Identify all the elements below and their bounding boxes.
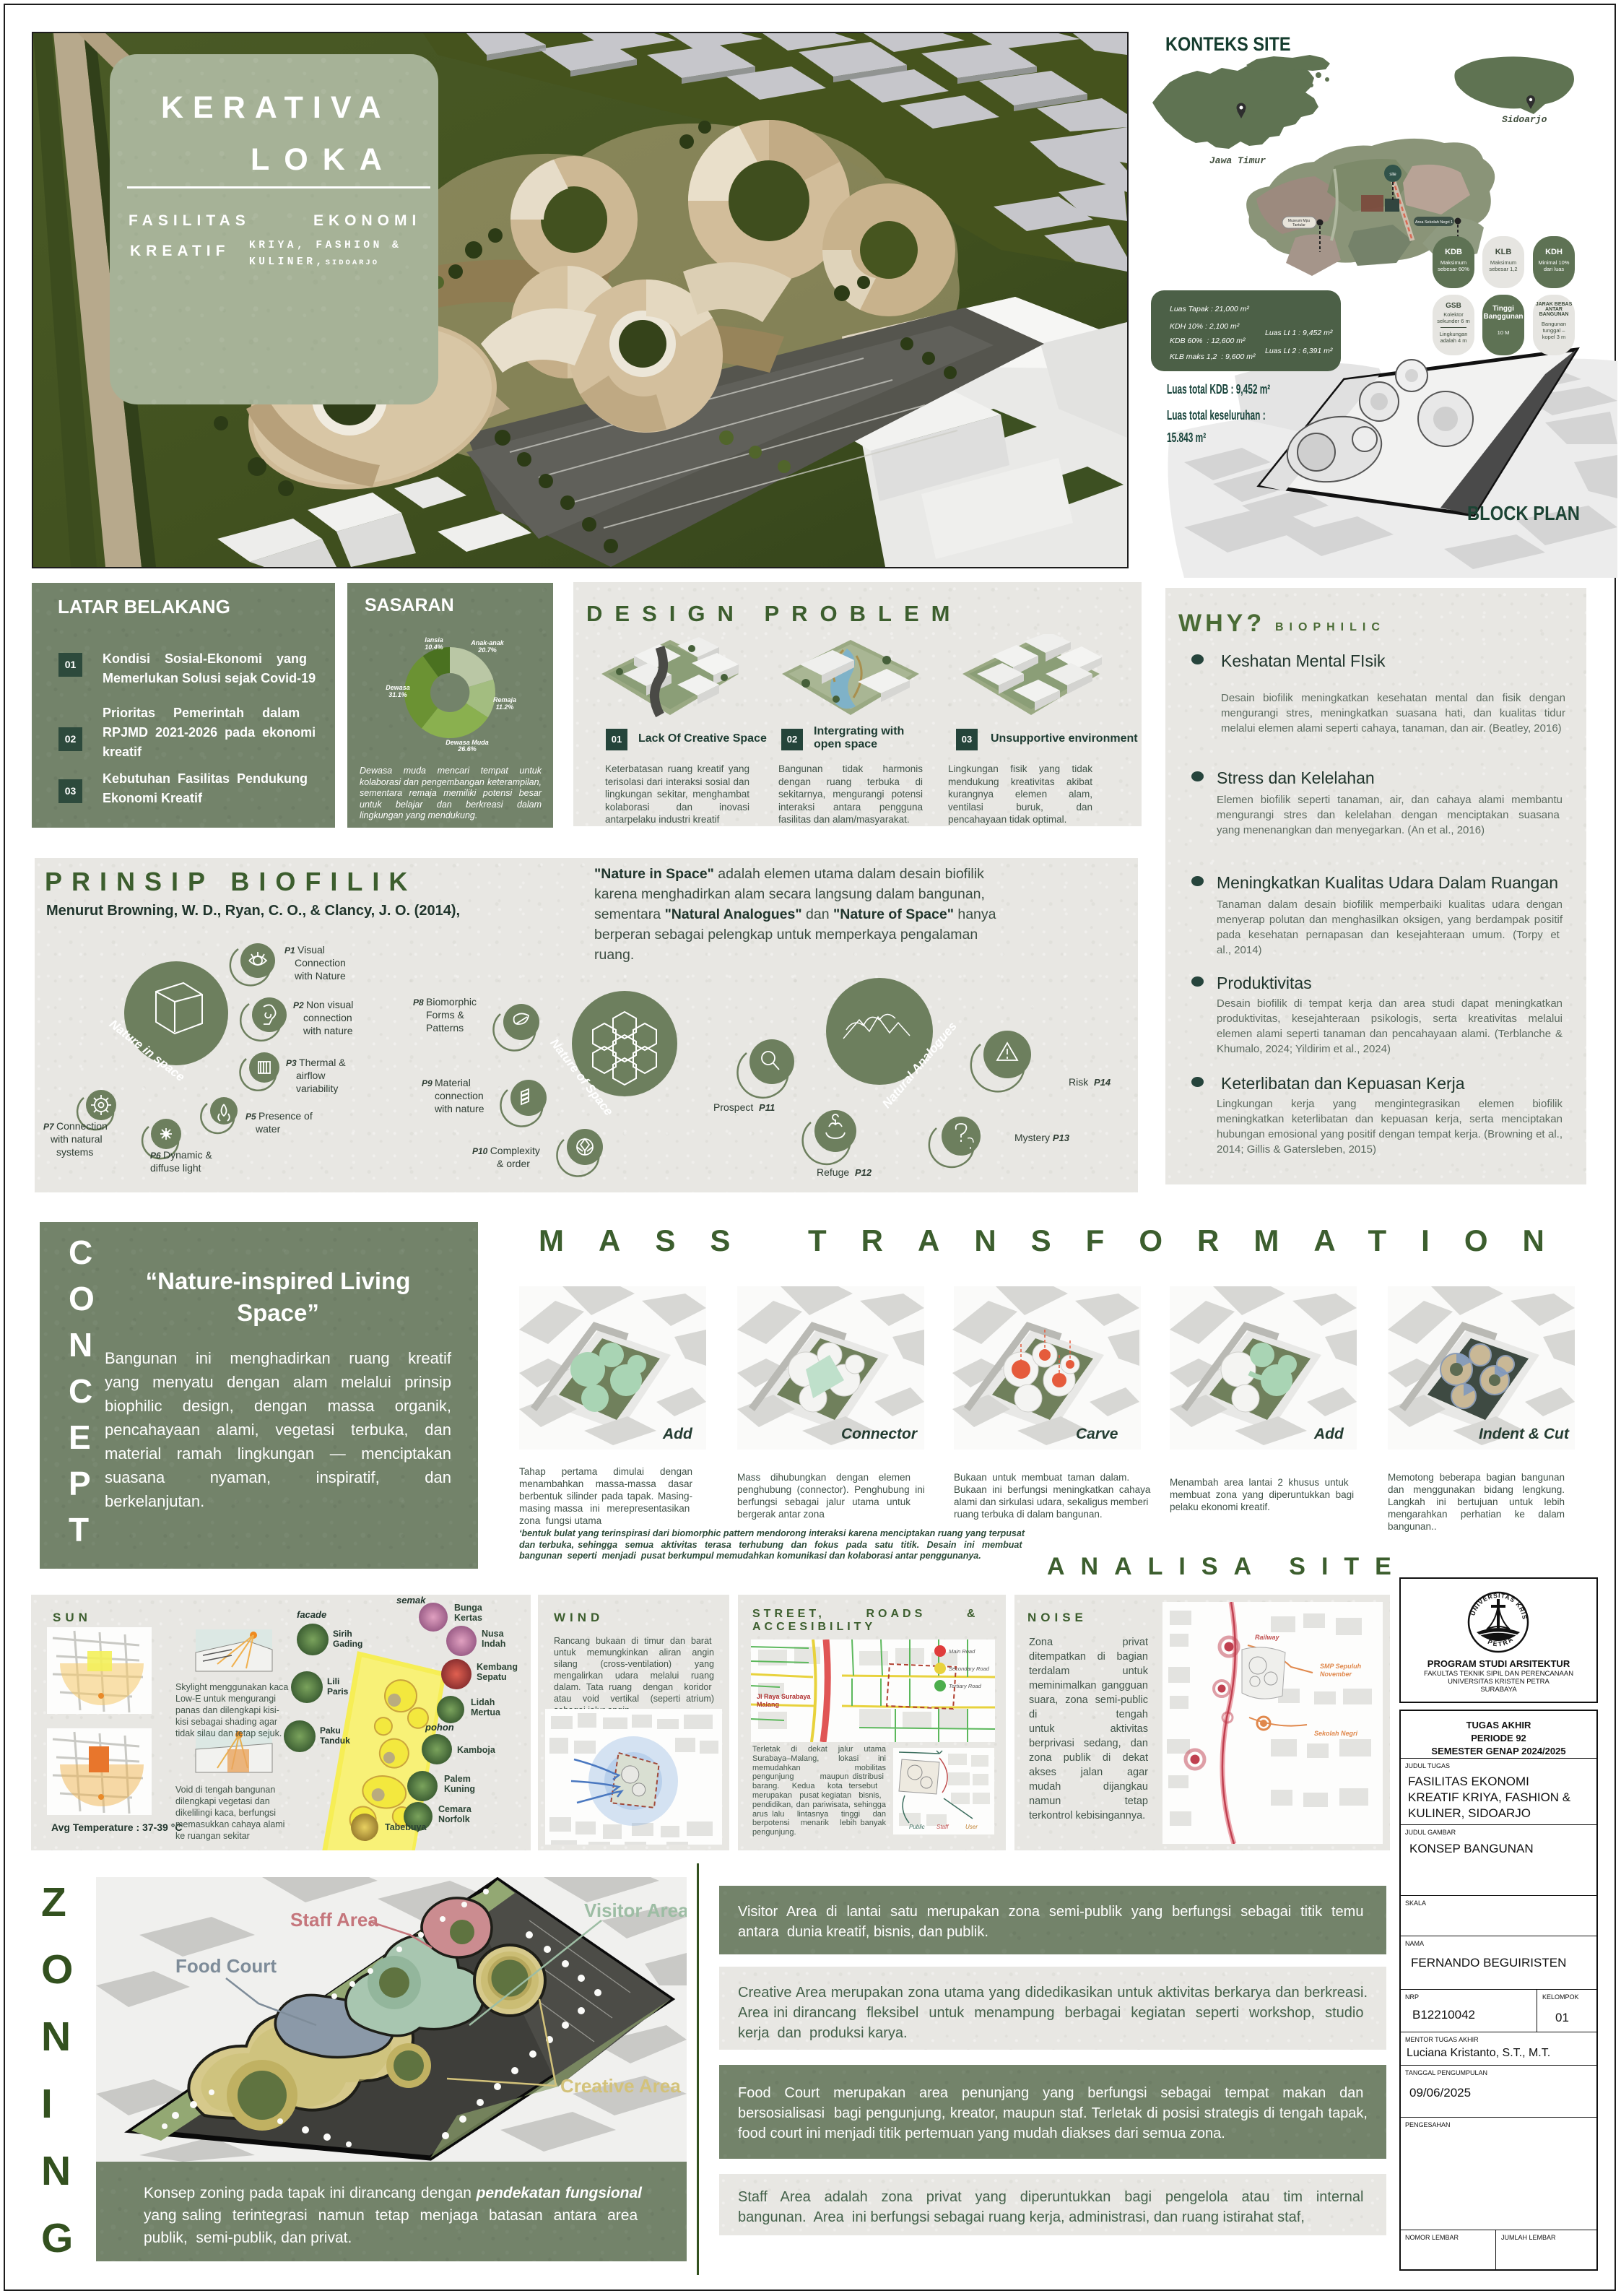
svg-text:Visitor Area: Visitor Area: [584, 1899, 687, 1921]
svg-text:Lili: Lili: [327, 1676, 339, 1686]
svg-text:Sekolah Negri: Sekolah Negri: [1314, 1730, 1358, 1737]
svg-text:Tertiary Road: Tertiary Road: [949, 1683, 982, 1689]
svg-text:Mertua: Mertua: [471, 1707, 501, 1717]
svg-text:Anak-anak: Anak-anak: [470, 639, 505, 646]
svg-text:P1 Visual: P1 Visual: [284, 944, 325, 956]
svg-text:lansia: lansia: [425, 636, 443, 644]
svg-text:Food Court: Food Court: [175, 1955, 277, 1977]
svg-text:airflow: airflow: [296, 1070, 326, 1081]
svg-text:connection: connection: [435, 1090, 484, 1101]
svg-text:with nature: with nature: [434, 1103, 484, 1114]
svg-text:site: site: [1389, 173, 1396, 177]
svg-text:pohon: pohon: [425, 1722, 454, 1733]
svg-text:Remaja: Remaja: [493, 696, 516, 703]
svg-text:P3 Thermal &: P3 Thermal &: [286, 1057, 346, 1068]
svg-text:Indah: Indah: [482, 1639, 505, 1649]
svg-text:Creative Area: Creative Area: [560, 2075, 681, 2097]
svg-text:Norfolk: Norfolk: [438, 1814, 470, 1824]
svg-text:P5 Presence of: P5 Presence of: [245, 1110, 313, 1122]
svg-text:Palem: Palem: [444, 1774, 471, 1784]
svg-text:connection: connection: [303, 1012, 352, 1023]
svg-text:variability: variability: [296, 1083, 338, 1094]
svg-text:Kertas: Kertas: [454, 1613, 482, 1623]
svg-text:SMP Sepuluh: SMP Sepuluh: [1320, 1663, 1362, 1670]
svg-text:Tantular: Tantular: [1292, 223, 1305, 228]
svg-text:Railway: Railway: [1255, 1634, 1280, 1641]
svg-text:Malang: Malang: [757, 1701, 779, 1708]
svg-text:11.2%: 11.2%: [496, 703, 514, 711]
svg-text:P9 Material: P9 Material: [422, 1077, 471, 1088]
svg-text:diffuse light: diffuse light: [150, 1162, 201, 1174]
svg-text:water: water: [255, 1123, 281, 1135]
svg-text:semak: semak: [396, 1595, 426, 1606]
svg-text:Gading: Gading: [333, 1639, 362, 1649]
svg-text:Main Road: Main Road: [949, 1648, 975, 1655]
svg-text:Kembang: Kembang: [477, 1662, 518, 1672]
svg-text:facade: facade: [297, 1609, 326, 1620]
svg-text:User: User: [965, 1824, 978, 1830]
svg-text:November: November: [1320, 1671, 1352, 1678]
svg-text:Forms &: Forms &: [426, 1009, 465, 1021]
svg-text:Staff Area: Staff Area: [290, 1909, 378, 1931]
svg-text:P8 Biomorphic: P8 Biomorphic: [413, 996, 477, 1008]
svg-text:Kuning: Kuning: [444, 1784, 475, 1794]
svg-text:Patterns: Patterns: [426, 1022, 464, 1034]
svg-text:& order: & order: [497, 1158, 530, 1169]
svg-text:Tabebuya: Tabebuya: [385, 1822, 427, 1832]
svg-text:Sirih: Sirih: [333, 1629, 352, 1639]
svg-text:Connection: Connection: [295, 957, 346, 969]
svg-text:with nature: with nature: [303, 1025, 353, 1036]
svg-text:Nusa: Nusa: [482, 1629, 505, 1639]
svg-text:31.1%: 31.1%: [388, 691, 407, 698]
svg-text:Cemara: Cemara: [438, 1804, 472, 1814]
svg-text:Sepatu: Sepatu: [477, 1672, 507, 1682]
svg-text:Refuge P12: Refuge P12: [817, 1166, 872, 1178]
svg-text:Prospect P11: Prospect P11: [713, 1101, 775, 1113]
svg-text:Mystery P13: Mystery P13: [1014, 1132, 1070, 1143]
svg-text:Risk P14: Risk P14: [1069, 1076, 1111, 1088]
svg-text:Secondary Road: Secondary Road: [949, 1665, 990, 1672]
svg-text:P2 Non visual: P2 Non visual: [293, 999, 353, 1010]
svg-text:Area Sekolah Negri 1: Area Sekolah Negri 1: [1415, 220, 1453, 225]
svg-text:systems: systems: [56, 1146, 93, 1158]
svg-text:Dewasa: Dewasa: [386, 684, 410, 691]
svg-text:P10 Complexity: P10 Complexity: [472, 1145, 540, 1156]
svg-text:Public: Public: [909, 1824, 925, 1830]
svg-text:Kamboja: Kamboja: [457, 1745, 496, 1755]
svg-text:BLOCK PLAN: BLOCK PLAN: [1467, 502, 1580, 524]
svg-text:26.6%: 26.6%: [457, 745, 477, 753]
svg-text:Paris: Paris: [327, 1686, 349, 1697]
svg-text:Tanduk: Tanduk: [320, 1736, 350, 1746]
svg-text:P7 Connection: P7 Connection: [43, 1120, 108, 1132]
svg-text:with natural: with natural: [50, 1133, 103, 1145]
svg-text:Paku: Paku: [320, 1725, 341, 1736]
svg-text:10.4%: 10.4%: [425, 644, 443, 651]
svg-text:Jawa Timur: Jawa Timur: [1209, 155, 1266, 166]
svg-text:Bunga: Bunga: [454, 1603, 483, 1613]
svg-text:Lidah: Lidah: [471, 1697, 495, 1707]
svg-text:Sidoarjo: Sidoarjo: [1502, 114, 1547, 125]
svg-text:20.7%: 20.7%: [477, 646, 497, 654]
svg-text:with Nature: with Nature: [294, 970, 346, 982]
svg-text:P6 Dynamic &: P6 Dynamic &: [150, 1149, 212, 1161]
svg-text:Avg Temperature : 37-39 °C: Avg Temperature : 37-39 °C: [51, 1821, 182, 1833]
svg-text:Jl Raya Surabaya: Jl Raya Surabaya: [757, 1693, 812, 1700]
svg-text:Staff: Staff: [936, 1824, 949, 1830]
